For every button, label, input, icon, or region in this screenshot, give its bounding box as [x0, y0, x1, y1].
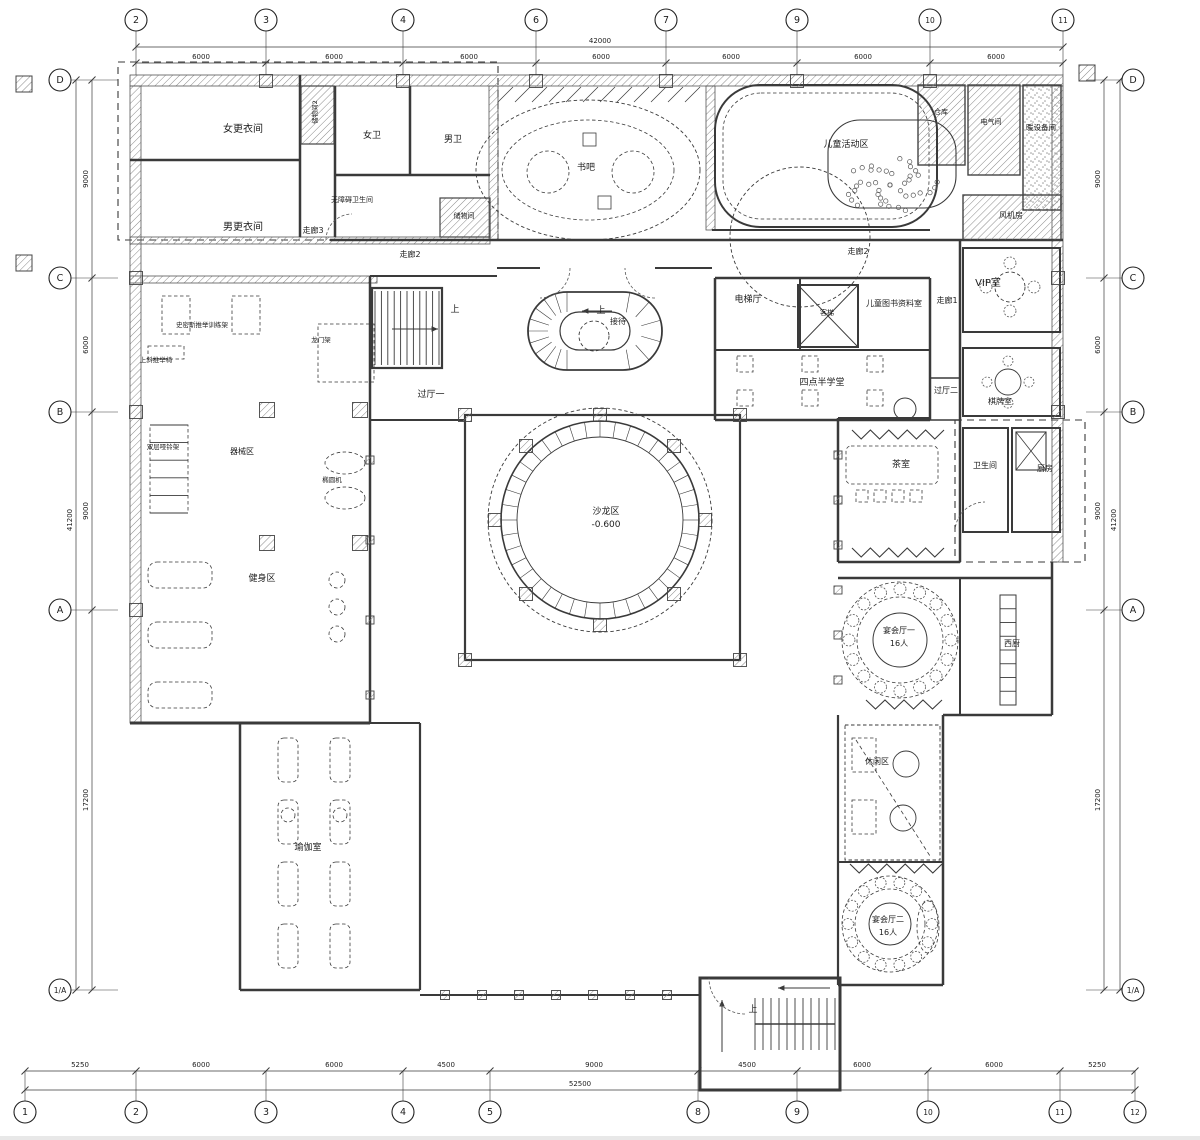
column — [734, 654, 747, 667]
grid-bubble-label: 2 — [133, 15, 139, 26]
column — [660, 75, 673, 88]
grid-bubble-label: 1/A — [1127, 986, 1140, 995]
dimension-text: 6000 — [854, 53, 872, 61]
column — [626, 991, 635, 1000]
room-label: 电气间 — [981, 117, 1002, 126]
dimension-text: 9000 — [82, 170, 90, 188]
room-label: 厨房 — [1037, 463, 1053, 473]
column — [699, 514, 712, 527]
grid-bubble-label: B — [1130, 407, 1137, 418]
room-label: 16人 — [890, 639, 908, 648]
grid-bubble-label: 4 — [400, 1107, 406, 1118]
dimension-text: 6000 — [987, 53, 1005, 61]
column — [260, 75, 273, 88]
room-label: 女更衣间 — [223, 122, 263, 135]
room-label: 健身区 — [248, 572, 275, 584]
room-label: 男卫 — [444, 134, 462, 145]
grid-bubble-label: 3 — [263, 15, 269, 26]
dimension-text: 17200 — [82, 789, 90, 811]
column — [366, 691, 374, 699]
grid-bubble-label: 11 — [1055, 1108, 1065, 1117]
dimension-text: 41200 — [1110, 509, 1118, 531]
column — [459, 654, 472, 667]
room-label: VIP室 — [975, 276, 1001, 289]
dimension-text: 6000 — [592, 53, 610, 61]
column — [834, 586, 842, 594]
grid-bubble-label: 6 — [533, 15, 539, 26]
column — [924, 75, 937, 88]
column — [552, 991, 561, 1000]
grid-bubble-label: A — [57, 605, 64, 616]
grid-bubble-label: 10 — [925, 16, 935, 25]
grid-bubble-label: 9 — [794, 1107, 800, 1118]
room-label: 棋牌室 — [988, 396, 1012, 406]
room-label: 客梯 — [820, 308, 834, 317]
dimension-text: 6000 — [192, 1061, 210, 1069]
column — [353, 403, 368, 418]
dimension-text: 9000 — [1094, 170, 1102, 188]
column — [260, 403, 275, 418]
grid-bubble-label: 1 — [22, 1107, 28, 1118]
grid-bubble-label: 7 — [663, 15, 669, 26]
room-label: 上 — [596, 305, 605, 316]
column — [1052, 406, 1065, 419]
column — [834, 496, 842, 504]
room-label: 走廊1 — [936, 295, 957, 305]
room-label: 接待 — [610, 316, 626, 326]
column — [353, 536, 368, 551]
room-label: 卫生间 — [973, 460, 997, 470]
wall-band — [706, 86, 715, 230]
room-label: 上斜推举椅 — [140, 355, 173, 364]
column — [366, 536, 374, 544]
dimension-text: 5250 — [71, 1061, 89, 1069]
room-label: 男更衣间 — [223, 220, 263, 233]
column — [589, 991, 598, 1000]
floor-plan: 女更衣间男更衣间储物间2走廊3女卫男卫无障碍卫生间储物间走廊2走廊2书吧儿童活动… — [0, 0, 1200, 1136]
dimension-text: 6000 — [1094, 336, 1102, 354]
dimension-text: 17200 — [1094, 789, 1102, 811]
room-label: 走廊3 — [302, 225, 323, 235]
grid-bubble-label: 9 — [794, 15, 800, 26]
room-label: 史密斯推举训练架 — [176, 320, 229, 329]
grid-bubble-label: D — [56, 75, 63, 86]
dimension-text: 6000 — [325, 53, 343, 61]
room-label: 暖设备间 — [1026, 122, 1056, 132]
room-label: 儿童图书资料室 — [866, 298, 922, 308]
column — [1052, 272, 1065, 285]
column — [520, 440, 533, 453]
grid-bubble-label: 1/A — [54, 986, 67, 995]
column — [520, 588, 533, 601]
column — [130, 604, 143, 617]
column — [530, 75, 543, 88]
column — [397, 75, 410, 88]
column — [478, 991, 487, 1000]
dimension-text: 6000 — [722, 53, 740, 61]
room-label: -0.600 — [591, 520, 620, 530]
room-label: 茶室 — [892, 458, 910, 470]
column — [489, 514, 502, 527]
column — [594, 619, 607, 632]
dimension-text: 9000 — [82, 502, 90, 520]
grid-bubble-label: C — [1130, 273, 1137, 284]
column — [734, 409, 747, 422]
grid-bubble-label: 8 — [695, 1107, 701, 1118]
dimension-text: 6000 — [82, 336, 90, 354]
grid-bubble-label: A — [1130, 605, 1137, 616]
wall-band — [130, 86, 141, 723]
room-label: 无障碍卫生间 — [331, 195, 373, 204]
room-label: 风机房 — [999, 210, 1023, 220]
dimension-text: 9000 — [585, 1061, 603, 1069]
room-label: 走廊2 — [847, 246, 868, 256]
column — [834, 676, 842, 684]
room-label: 电梯厅 — [734, 293, 761, 305]
grid-bubble-label: 12 — [1130, 1108, 1140, 1117]
column — [130, 406, 143, 419]
grid-bubble-label: 4 — [400, 15, 406, 26]
grid-bubble-label: C — [57, 273, 64, 284]
dimension-text: 52500 — [569, 1080, 591, 1088]
dimension-text: 4500 — [738, 1061, 756, 1069]
dimension-text: 5250 — [1088, 1061, 1106, 1069]
column — [459, 409, 472, 422]
column — [130, 272, 143, 285]
room-label: 宴会厅二 — [872, 914, 904, 924]
dimension-text: 6000 — [985, 1061, 1003, 1069]
grid-bubble-label: 2 — [133, 1107, 139, 1118]
room-label: 过厅一 — [417, 388, 444, 400]
grid-bubble-label: 5 — [487, 1107, 493, 1118]
room-label: 瑜伽室 — [294, 841, 321, 853]
hatched-room — [16, 255, 32, 271]
column — [834, 631, 842, 639]
room-label: 上 — [748, 1004, 757, 1015]
room-label: 器械区 — [230, 446, 254, 456]
column — [791, 75, 804, 88]
column — [366, 456, 374, 464]
room-label: 龙门架 — [311, 335, 331, 344]
grid-bubble-label: 3 — [263, 1107, 269, 1118]
room-label: 宴会厅一 — [883, 625, 915, 635]
room-label: 仓库 — [934, 107, 948, 116]
dimension-text: 6000 — [325, 1061, 343, 1069]
dimension-text: 6000 — [853, 1061, 871, 1069]
column — [594, 409, 607, 422]
drawing-sheet: 女更衣间男更衣间储物间2走廊3女卫男卫无障碍卫生间储物间走廊2走廊2书吧儿童活动… — [0, 0, 1200, 1136]
grid-bubble-label: B — [57, 407, 64, 418]
hatched-room — [968, 85, 1020, 175]
column — [515, 991, 524, 1000]
room-label: 休闲区 — [865, 756, 889, 766]
room-label: 椭圆机 — [322, 475, 342, 484]
speckled-room — [1023, 85, 1061, 210]
column — [260, 536, 275, 551]
room-label: 儿童活动区 — [823, 138, 868, 150]
room-label: 储物间2 — [310, 100, 319, 124]
column — [663, 991, 672, 1000]
grid-bubble-label: D — [1129, 75, 1136, 86]
room-label: 女卫 — [363, 129, 381, 141]
column — [834, 541, 842, 549]
room-label: 过厅二 — [934, 385, 958, 395]
room-label: 走廊2 — [399, 249, 420, 259]
room-label: 储物间 — [454, 211, 475, 220]
room-label: 上 — [450, 304, 459, 315]
column — [366, 616, 374, 624]
room-label: 书吧 — [577, 162, 595, 173]
room-label: 西厨 — [1004, 639, 1020, 648]
room-label: 沙龙区 — [592, 505, 619, 517]
column — [668, 588, 681, 601]
column — [668, 440, 681, 453]
dimension-text: 4500 — [437, 1061, 455, 1069]
column — [834, 451, 842, 459]
hatched-room — [16, 76, 32, 92]
room-label: 16人 — [879, 928, 897, 937]
grid-bubble-label: 10 — [923, 1108, 933, 1117]
room-label: 四点半学堂 — [799, 376, 844, 388]
dimension-text: 41200 — [66, 509, 74, 531]
dimension-text: 42000 — [589, 37, 611, 45]
hatched-room — [1079, 65, 1095, 81]
dimension-text: 9000 — [1094, 502, 1102, 520]
dimension-text: 6000 — [460, 53, 478, 61]
room-label: 双层哑铃架 — [147, 442, 180, 451]
grid-bubble-label: 11 — [1058, 16, 1068, 25]
column — [441, 991, 450, 1000]
wall-band — [130, 276, 377, 283]
dimension-text: 6000 — [192, 53, 210, 61]
